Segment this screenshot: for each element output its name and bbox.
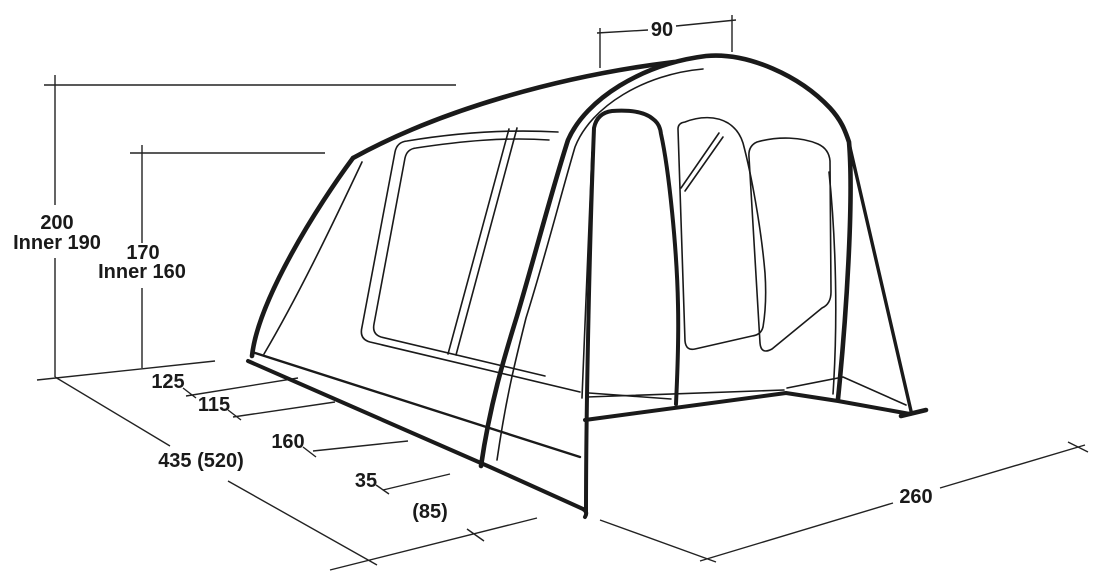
dim-seg-line-125	[37, 361, 215, 380]
dim-label-seg-1: 125	[151, 371, 184, 393]
dim-seg-slash-3	[303, 447, 316, 457]
dim-seg-line-85a	[383, 474, 450, 490]
diagram-canvas: 200 Inner 190 170 Inner 160 90 125 115 1…	[0, 0, 1107, 584]
door-window-fold-line	[681, 133, 723, 191]
dim-seg-line-160	[233, 402, 335, 417]
tent-back-edge	[252, 158, 353, 356]
dim-label-height-inner: Inner 190	[13, 232, 101, 254]
dim-label-front-width: 260	[899, 486, 932, 508]
dim-seg-slash-1	[183, 388, 196, 398]
dim-seg-line-85b	[330, 518, 537, 570]
dim-label-seg-5: (85)	[412, 501, 448, 523]
dim-label-height: 200	[40, 212, 73, 234]
guy-line	[849, 143, 911, 411]
dimension-labels: 200 Inner 190 170 Inner 160 90 125 115 1…	[13, 19, 933, 523]
dim-front-260-tick	[1068, 442, 1088, 452]
dim-seg-line-35	[313, 441, 408, 451]
dim-label-seg-2: 115	[198, 394, 230, 416]
side-window-outer	[361, 131, 580, 392]
dim-label-seg-4: 35	[355, 470, 377, 492]
dim-label-total-length: 435 (520)	[158, 450, 244, 472]
dim-label-mid-height-inner: Inner 160	[98, 261, 186, 283]
side-window-inner	[374, 139, 549, 376]
front-arch-inner-seam	[497, 69, 703, 460]
door-frame	[586, 111, 678, 512]
back-edge-seam	[264, 162, 362, 354]
dim-front-260-line	[700, 445, 1085, 561]
dim-front-extension	[600, 520, 716, 562]
door-side-window	[678, 118, 766, 350]
dim-label-top-width: 90	[651, 19, 673, 41]
dim-label-seg-3: 160	[271, 431, 304, 453]
side-window-mullion	[448, 128, 517, 355]
front-arch-outer	[481, 56, 851, 466]
tent-dimension-diagram: 200 Inner 190 170 Inner 160 90 125 115 1…	[0, 0, 1107, 584]
